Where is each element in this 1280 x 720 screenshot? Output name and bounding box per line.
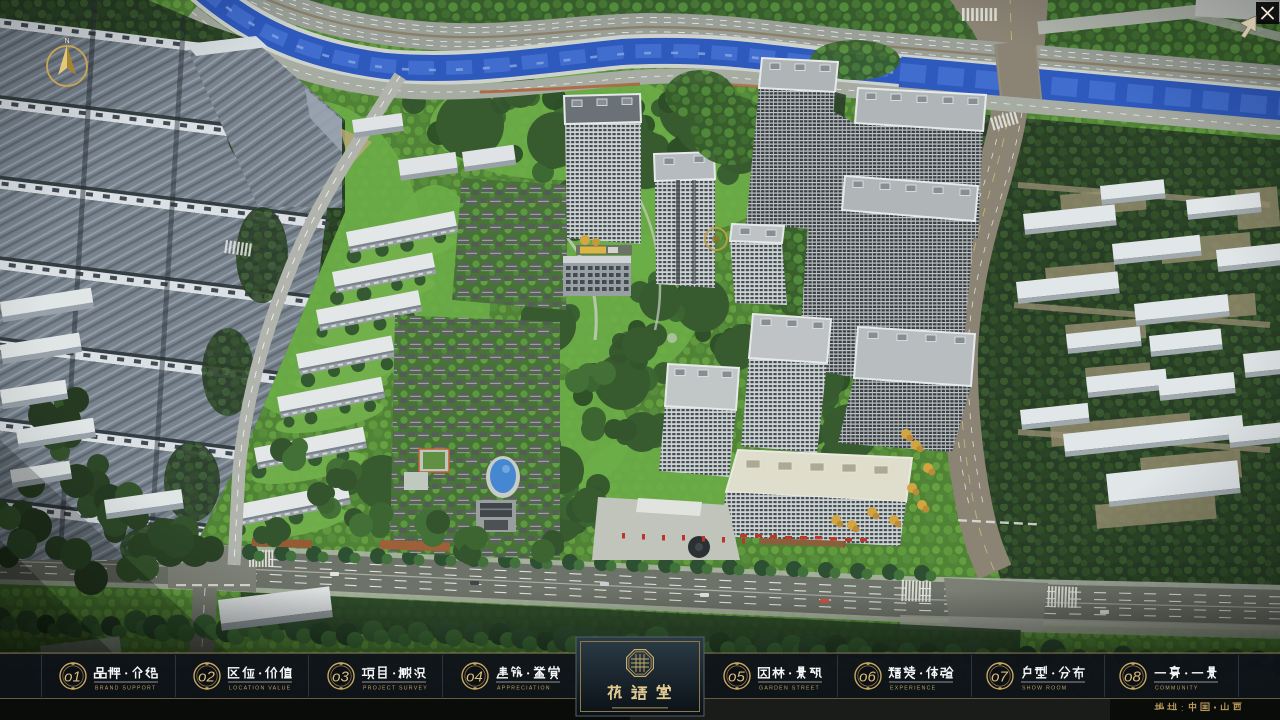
svg-text:N: N — [64, 38, 69, 45]
svg-text:LOCATION VALUE: LOCATION VALUE — [229, 686, 291, 692]
svg-text:o7: o7 — [991, 669, 1008, 686]
svg-text:o5: o5 — [728, 669, 745, 686]
svg-text:SHOW ROOM: SHOW ROOM — [1022, 686, 1067, 692]
svg-text:o3: o3 — [332, 669, 349, 686]
svg-text:GARDEN STREET: GARDEN STREET — [759, 686, 820, 692]
svg-text:BRAND SUPPORT: BRAND SUPPORT — [95, 686, 156, 692]
svg-text:PROJECT SURVEY: PROJECT SURVEY — [363, 686, 428, 692]
svg-text:o6: o6 — [859, 669, 876, 686]
svg-text:o4: o4 — [466, 669, 483, 686]
svg-text:EXPERIENCE: EXPERIENCE — [890, 686, 936, 692]
svg-text:COMMUNITY: COMMUNITY — [1155, 686, 1199, 692]
svg-text:o1: o1 — [64, 669, 81, 686]
svg-text:APPRECIATION: APPRECIATION — [497, 686, 551, 692]
svg-text:o8: o8 — [1124, 669, 1141, 686]
svg-text:o2: o2 — [198, 669, 215, 686]
svg-text::: : — [1181, 703, 1184, 713]
